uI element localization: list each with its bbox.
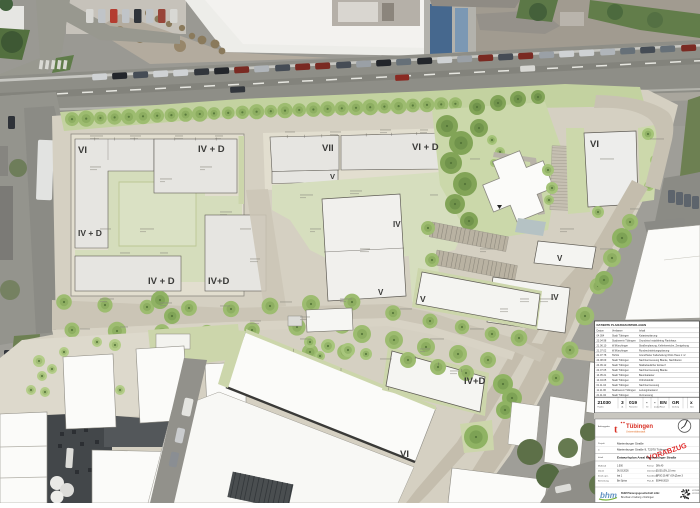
svg-text:V: V (330, 172, 335, 181)
svg-text:Index: Index (690, 407, 694, 409)
svg-text:06.03.2026: 06.03.2026 (617, 471, 629, 473)
svg-text:21.11.02: 21.11.02 (597, 394, 607, 397)
svg-text:Verfasser: Verfasser (612, 330, 623, 333)
svg-text:BHM Planungsgesellschaft mbH: BHM Planungsgesellschaft mbH (621, 492, 660, 495)
svg-text:Stadt Tübingen: Stadt Tübingen (612, 364, 630, 367)
svg-text:Stadt Tübingen: Stadt Tübingen (612, 394, 630, 397)
svg-text:Stadt Tübingen: Stadt Tübingen (612, 359, 630, 362)
svg-text:Stadt Tübingen: Stadt Tübingen (612, 374, 630, 377)
svg-text:V: V (378, 288, 384, 297)
svg-text:EN: EN (660, 400, 667, 406)
svg-text:Katasterplanung: Katasterplanung (639, 334, 658, 337)
svg-text:Maßstab: Maßstab (598, 465, 607, 468)
svg-text:V: V (557, 254, 563, 263)
svg-text:Nachtvermessung: Nachtvermessung (639, 384, 660, 387)
svg-text:x: x (690, 401, 693, 406)
svg-text:Straßenplanung, Kellerbereiche: Straßenplanung, Kellerbereiche, Zentgebu… (639, 344, 690, 347)
svg-text:V: V (420, 294, 426, 304)
svg-text:Grundhreler Kellerleitung 6/GG: Grundhreler Kellerleitung 6/GG Haus 1 t … (639, 354, 686, 357)
svg-text:3: 3 (621, 400, 624, 406)
svg-text:Tübingen: Tübingen (626, 424, 653, 430)
svg-text:IV+D: IV+D (208, 276, 230, 287)
svg-text:21.06.10: 21.06.10 (597, 344, 607, 347)
svg-text:VI: VI (590, 139, 599, 150)
svg-text:21030: 21030 (598, 400, 612, 406)
svg-text:14.05.21: 14.05.21 (597, 374, 607, 377)
svg-text:Universitätsstadt: Universitätsstadt (626, 429, 645, 433)
svg-text:Stadtverein Tübingen: Stadtverein Tübingen (612, 389, 636, 392)
svg-text:Bemerkung: Bemerkung (598, 480, 609, 483)
svg-text:Grundriss Instabilering Flankh: Grundriss Instabilering Flankhaus (639, 339, 677, 342)
svg-text:VI: VI (400, 449, 409, 460)
svg-text:24.08.09: 24.08.09 (597, 359, 607, 362)
svg-text:Format: Format (647, 465, 654, 468)
svg-text:Stadt Tübingen: Stadt Tübingen (612, 379, 630, 382)
svg-text:01.11.04: 01.11.04 (597, 384, 607, 387)
svg-text:Bei Spina: Bei Spina (617, 481, 628, 483)
svg-text:Marienburger Straße: Marienburger Straße (617, 441, 644, 445)
svg-text:Städtebaulicher Entwurf: Städtebaulicher Entwurf (639, 364, 666, 367)
svg-text:VI: VI (78, 145, 87, 156)
svg-text:Datum: Datum (598, 470, 604, 473)
svg-text:21.07.78: 21.07.78 (597, 354, 607, 357)
svg-text:019: 019 (629, 400, 637, 406)
svg-text:23.04.98: 23.04.98 (597, 339, 607, 342)
svg-text:Orthofotobild: Orthofotobild (639, 379, 654, 382)
svg-text:Leitungsbestand: Leitungsbestand (639, 389, 658, 392)
svg-text:04.054: 04.054 (597, 334, 605, 337)
svg-text:IV + D: IV + D (78, 228, 102, 238)
svg-text:Stadt Tübingen: Stadt Tübingen (612, 384, 630, 387)
svg-text:W.Münchinger: W.Münchinger (612, 349, 628, 352)
svg-text:Baumkataster: Baumkataster (639, 374, 655, 377)
svg-text:21.07.02: 21.07.02 (597, 349, 607, 352)
svg-text:Zeichnung: Zeichnung (672, 407, 679, 409)
svg-text:W.Münchinger: W.Münchinger (612, 344, 628, 347)
svg-text:IV + D: IV + D (198, 144, 225, 155)
svg-text:Datum: Datum (597, 330, 604, 333)
svg-text:bat 1: bat 1 (617, 475, 623, 478)
svg-text:E0440-2019: E0440-2019 (656, 481, 669, 483)
svg-text:Stadt Tübingen: Stadt Tübingen (612, 369, 630, 372)
svg-text:Stadt Tübingen: Stadt Tübingen (612, 334, 630, 337)
svg-text:GR: GR (672, 400, 680, 406)
svg-text:EPSG 31467 t DA [Zone 3: EPSG 31467 t DA [Zone 3 (656, 475, 684, 478)
svg-text:Nachtvermessung Blanke, Nachtb: Nachtvermessung Blanke, Nachtbeton (639, 359, 682, 362)
svg-text:21030_EN_10.mxx: 21030_EN_10.mxx (656, 471, 676, 473)
svg-text:DATIERTE PLANUNGSUNTERLAGEN: DATIERTE PLANUNGSUNTERLAGEN (597, 323, 647, 327)
svg-text:VI + D: VI + D (412, 142, 439, 153)
svg-text:t: t (614, 425, 618, 436)
svg-text:Bruchsal • Freiburg • Nürtinge: Bruchsal • Freiburg • Nürtingen (621, 496, 655, 499)
svg-text:Nachtvermessung Blanke: Nachtvermessung Blanke (639, 369, 668, 372)
svg-text:IV: IV (393, 220, 401, 229)
svg-text:Plan-ID: Plan-ID (647, 481, 654, 483)
svg-text:Vermessung: Vermessung (639, 394, 654, 397)
svg-text:52277429: 52277429 (692, 493, 699, 495)
svg-text:1:500: 1:500 (617, 466, 623, 468)
svg-text:Rundrechtsleitungsplanung: Rundrechtsleitungsplanung (639, 349, 670, 352)
svg-text:VII: VII (322, 143, 334, 154)
svg-text:Projekt: Projekt (598, 442, 605, 445)
svg-text:IV: IV (551, 293, 559, 302)
svg-text:Entwurfsplan Areal Marienburge: Entwurfsplan Areal Marienburger Straße (617, 455, 676, 459)
svg-text:Inhalt: Inhalt (639, 330, 645, 333)
svg-text:11.11.06: 11.11.06 (597, 389, 607, 392)
svg-text:24.07.05: 24.07.05 (597, 369, 607, 372)
svg-text:bearb. gez.: bearb. gez. (598, 475, 609, 478)
svg-text:Inhalt: Inhalt (598, 456, 604, 459)
svg-text:DIN A0: DIN A0 (656, 465, 664, 468)
svg-text:SVGG: SVGG (612, 354, 619, 357)
svg-text:IV + D: IV + D (148, 276, 175, 287)
svg-text:24.09.12: 24.09.12 (597, 364, 607, 367)
svg-text:Stadtverein Tübingen: Stadtverein Tübingen (612, 339, 636, 342)
svg-text:01279388: 01279388 (692, 490, 699, 492)
svg-text:14.04.05: 14.04.05 (597, 379, 607, 382)
svg-text:Auftraggeber: Auftraggeber (598, 425, 610, 428)
svg-text:IV+D: IV+D (464, 376, 486, 387)
